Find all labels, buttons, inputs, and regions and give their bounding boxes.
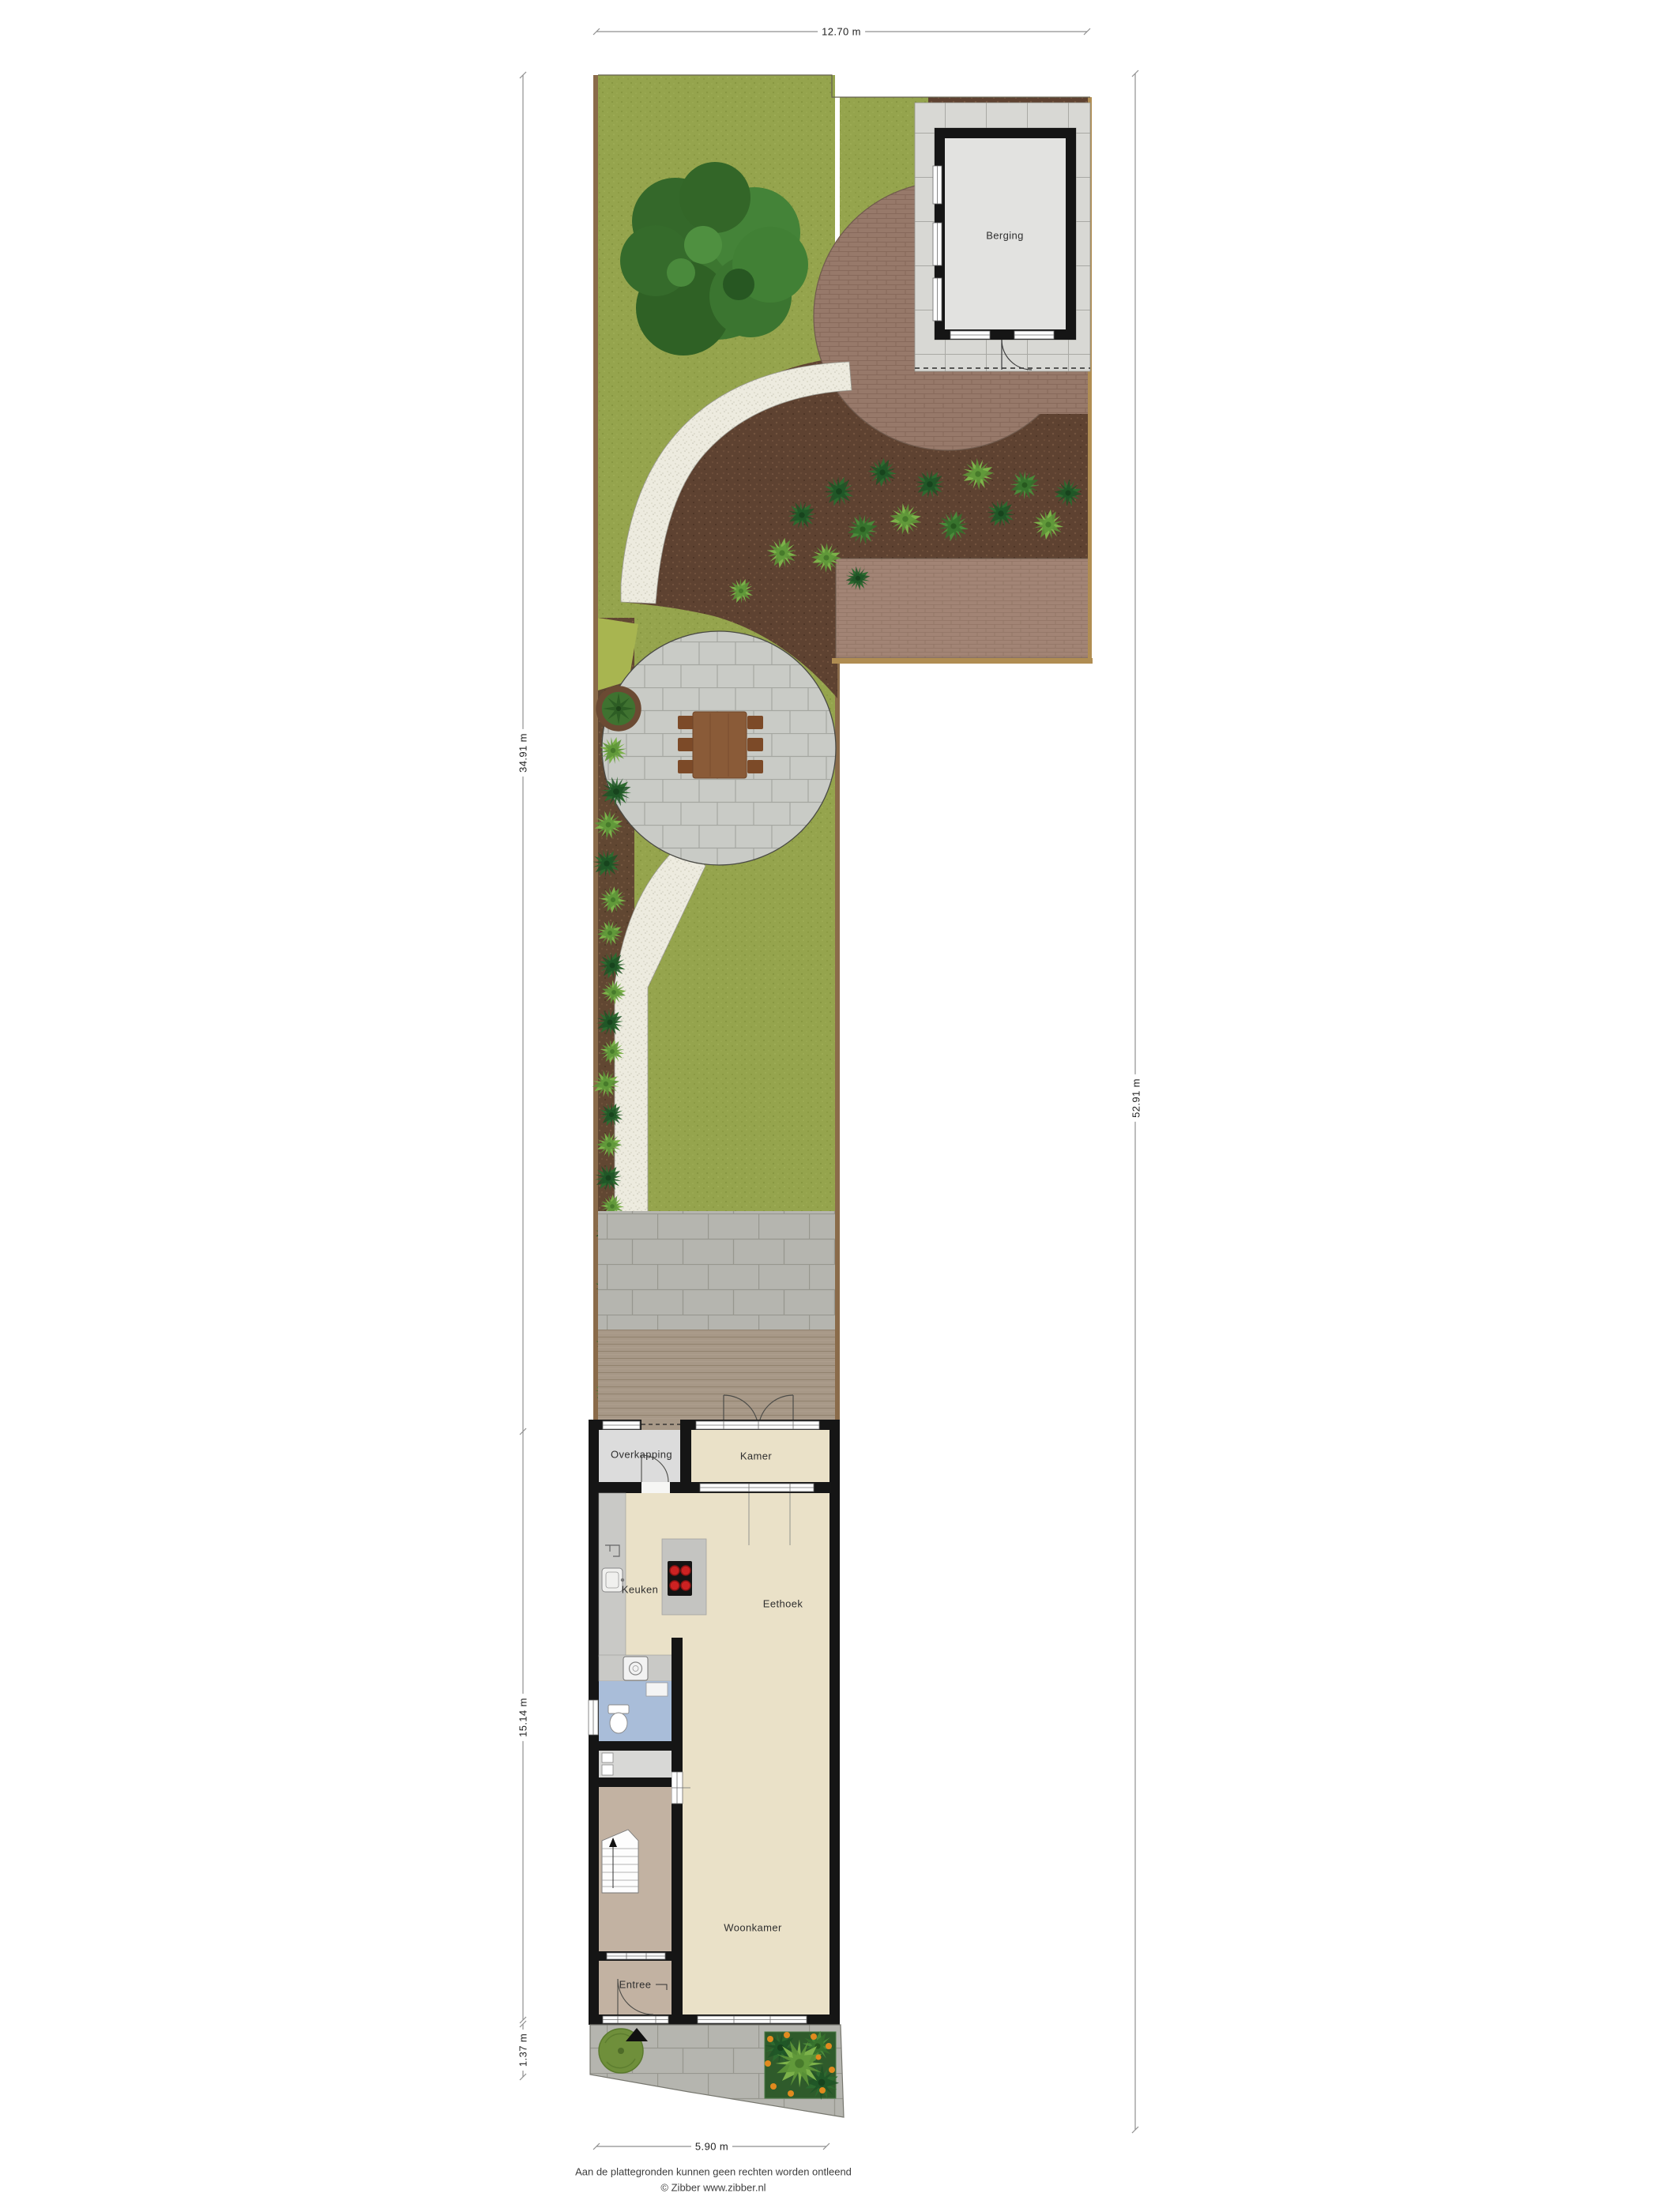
room-label-overkapping: Overkapping [611, 1449, 672, 1461]
block-paving [598, 1211, 835, 1330]
dimension-right-label: 52.91 m [1130, 1074, 1142, 1122]
dimension-left-front-label: 1.37 m [517, 2030, 529, 2071]
footer-disclaimer: Aan de plattegronden kunnen geen rechten… [575, 2166, 852, 2178]
window-icon [607, 1953, 665, 1959]
floorplan-canvas [0, 0, 1659, 2212]
dimension-left-house-label: 15.14 m [517, 1694, 529, 1741]
garden-left-border [593, 75, 598, 1430]
room-label-woonkamer: Woonkamer [724, 1922, 781, 1934]
dining-table-icon [678, 712, 763, 778]
shed-berging [933, 128, 1076, 370]
patio-circle [602, 631, 836, 865]
window-icon [603, 1421, 640, 1429]
room-label-berging: Berging [986, 230, 1024, 242]
footer-copyright: © Zibber www.zibber.nl [660, 2182, 766, 2194]
window-icon [933, 166, 942, 321]
window-icon [603, 2016, 807, 2023]
window-icon [589, 1700, 598, 1735]
wood-deck [598, 1330, 835, 1430]
flower-bed-icon [751, 2018, 851, 2112]
front-garden [590, 2018, 851, 2117]
room-label-keuken: Keuken [622, 1584, 659, 1596]
room-label-entree: Entree [619, 1979, 652, 1991]
window-icon [696, 1421, 819, 1429]
dimension-bottom-label: 5.90 m [691, 2141, 732, 2153]
room-label-kamer: Kamer [740, 1450, 772, 1462]
house [589, 1420, 840, 2025]
dimension-top-label: 12.70 m [818, 26, 865, 38]
washer-icon [623, 1657, 648, 1680]
window-icon [700, 1484, 814, 1492]
toilet-icon [608, 1705, 629, 1733]
cooktop-icon [668, 1561, 692, 1596]
brick-path-band [836, 559, 1089, 658]
stairs-icon [602, 1830, 638, 1893]
kitchen-island [662, 1539, 706, 1615]
dimension-left-garden-label: 34.91 m [517, 729, 529, 777]
room-label-eethoek: Eethoek [763, 1598, 803, 1610]
terrace-by-house [598, 1211, 835, 1430]
